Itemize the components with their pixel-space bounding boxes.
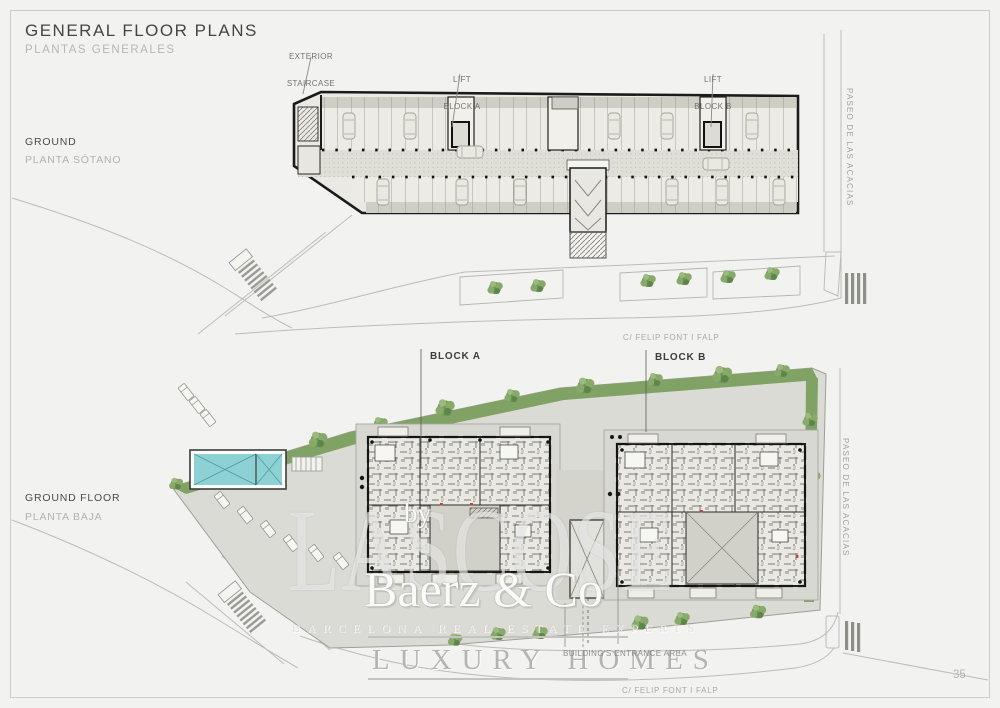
- watermark-rule-top: [368, 636, 628, 638]
- pool-steps: [292, 457, 322, 471]
- page-title: GENERAL FLOOR PLANS: [25, 21, 258, 41]
- street-paseo-acacias-top: PASEO DE LAS ACACIAS: [845, 88, 854, 208]
- page-subtitle: PLANTAS GENERALES: [25, 44, 176, 56]
- upper-planters: [460, 266, 800, 305]
- watermark-brand: Baerz & Co: [364, 560, 603, 618]
- callout-building-entrance: BUILDING'S ENTRANCE AREA: [563, 649, 687, 658]
- page-number: 35: [953, 669, 966, 681]
- upper-trees: [487, 267, 779, 294]
- pool: [190, 450, 286, 489]
- ground-floor-label-es: PLANTA BAJA: [25, 511, 102, 523]
- callout-lift-block-a: LIFT BLOCK A: [432, 57, 492, 129]
- callout-block-a: BLOCK A: [430, 351, 481, 362]
- callout-lift-block-b: LIFT BLOCK B: [683, 57, 743, 129]
- crosswalk-top-icon: [845, 273, 866, 304]
- street-stairs-icon: [229, 249, 277, 301]
- callout-exterior-staircase: EXTERIOR STAIRCASE: [276, 34, 346, 106]
- watermark-tagline: BARCELONA REAL ESTATE EXPERTS: [292, 621, 701, 636]
- street-felip-font-bottom: C/ FELIP FONT I FALP: [622, 686, 718, 695]
- mid-stair-core: [548, 97, 578, 150]
- street-felip-font-top: C/ FELIP FONT I FALP: [623, 333, 719, 342]
- floor-plans-page: LASCOSE by Baerz & Co BARCELONA REAL EST…: [0, 0, 1000, 708]
- basement-label-es: PLANTA SÓTANO: [25, 154, 121, 166]
- watermark-rule-bottom: [368, 678, 628, 680]
- callout-block-b: BLOCK B: [655, 352, 706, 363]
- garage-ramp: [567, 160, 609, 258]
- crosswalk-bottom-icon: [845, 621, 860, 652]
- street-paseo-acacias-bottom: PASEO DE LAS ACACIAS: [841, 438, 850, 558]
- ground-floor-label-en: GROUND FLOOR: [25, 492, 120, 504]
- basement-label-en: GROUND: [25, 136, 76, 148]
- watermark-by: by: [404, 498, 431, 529]
